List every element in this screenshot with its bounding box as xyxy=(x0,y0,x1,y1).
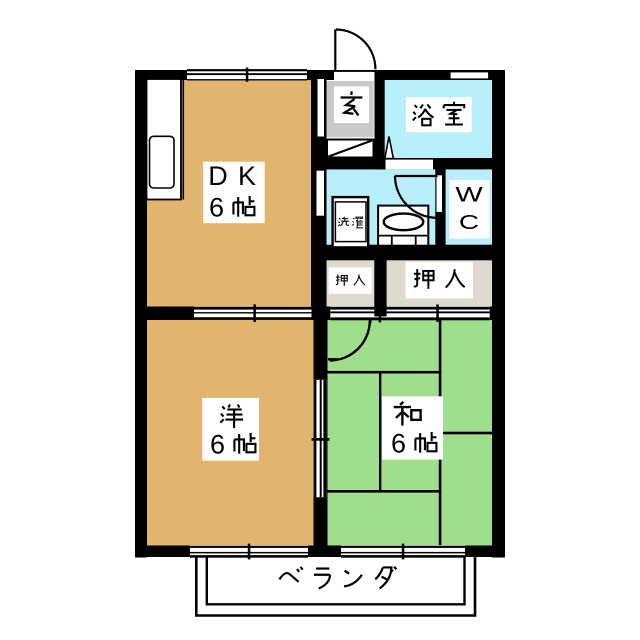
svg-text:C: C xyxy=(459,212,479,234)
svg-text:6: 6 xyxy=(210,430,225,460)
svg-text:6: 6 xyxy=(209,193,224,223)
svg-text:K: K xyxy=(238,161,256,191)
svg-text:6: 6 xyxy=(391,429,406,459)
svg-text:D: D xyxy=(208,161,228,191)
svg-text:W: W xyxy=(455,183,483,206)
